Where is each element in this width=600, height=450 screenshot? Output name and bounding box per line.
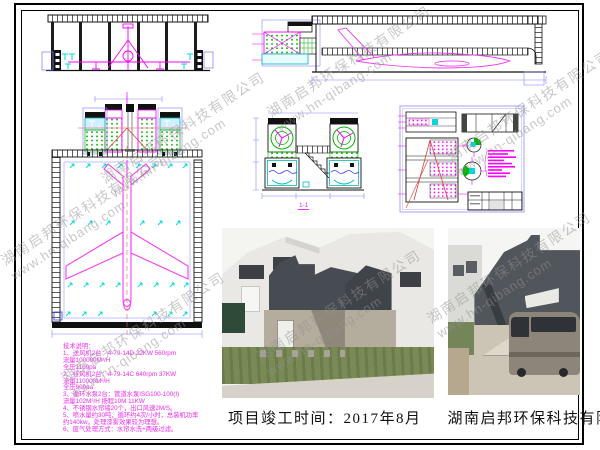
section-tower-left (265, 118, 299, 188)
site-photo-left (222, 228, 434, 398)
project-caption: 项目竣工时间：2017年8月湖南启邦环保科技有限公司 (228, 407, 584, 428)
debris (260, 350, 345, 357)
van-wheel-front (517, 368, 526, 377)
green-shed (222, 303, 245, 334)
drawing-side-elevation (252, 16, 546, 85)
van-windshield (511, 317, 528, 337)
section-tower-right (327, 118, 361, 188)
technical-notes: 技术说明： 1、送风机2台：4-79-14D 22KW 560rpm 流量100… (63, 344, 233, 434)
base-door (277, 320, 294, 349)
document-page: 湖南启邦环保科技有限公司www.hn-qibang.com 湖南启邦环保科技有限… (0, 0, 600, 450)
window (466, 261, 477, 273)
van-windows (531, 317, 576, 332)
company-name-text: 湖南启邦环保科技有限公司 (448, 411, 600, 427)
dirt-left (448, 348, 469, 395)
drawing-floor-plan (52, 146, 202, 338)
completion-date-text: 项目竣工时间：2017年8月 (228, 411, 422, 427)
drawing-end-elevation (42, 15, 213, 71)
van-trim (509, 352, 580, 357)
drawing-front-elevation (78, 92, 187, 156)
window (400, 272, 421, 287)
window (239, 265, 264, 279)
window (453, 265, 464, 277)
section-label: 1-1 (298, 202, 309, 210)
drawing-cross-section (253, 113, 364, 199)
site-photo-right (448, 228, 580, 395)
drawing-detail-sheet (398, 106, 524, 212)
